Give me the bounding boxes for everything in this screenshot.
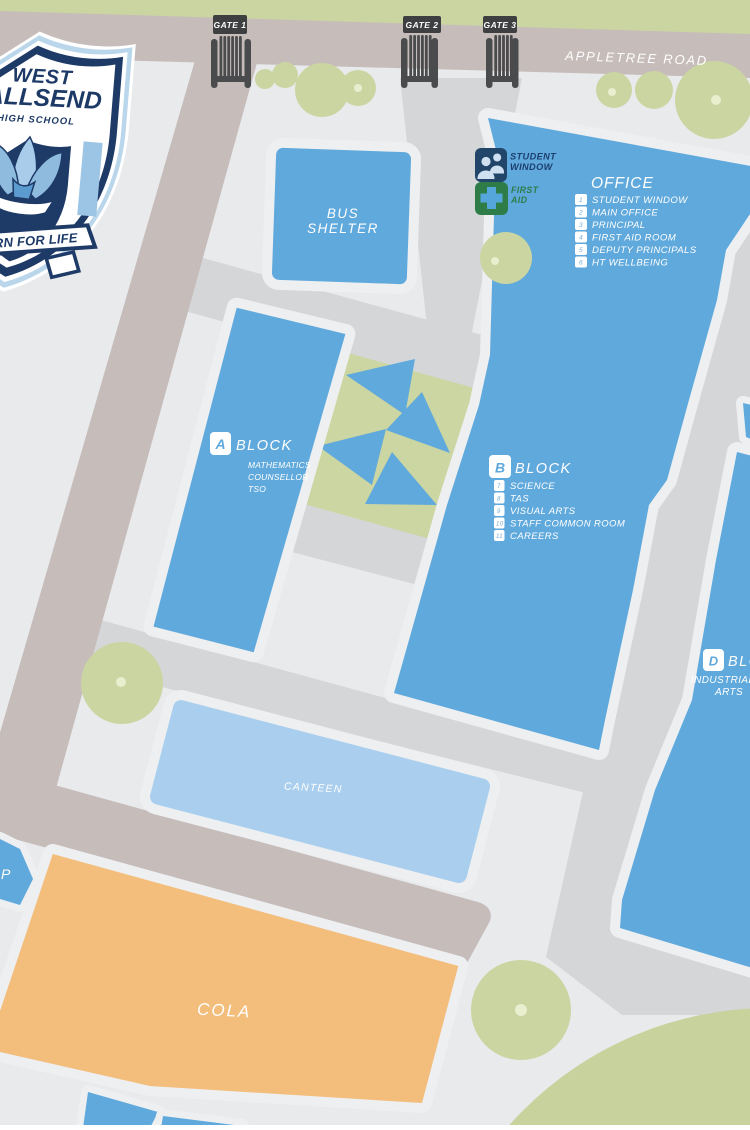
svg-text:COUNSELLOR: COUNSELLOR [248, 472, 309, 482]
svg-text:GATE 3: GATE 3 [483, 20, 516, 30]
svg-text:D: D [709, 654, 719, 669]
svg-text:B: B [495, 460, 505, 476]
svg-text:TSO: TSO [248, 484, 266, 494]
svg-text:CAREERS: CAREERS [510, 531, 559, 542]
svg-text:PRINCIPAL: PRINCIPAL [592, 220, 646, 231]
svg-text:VISUAL ARTS: VISUAL ARTS [510, 506, 576, 517]
svg-text:AID: AID [510, 195, 528, 205]
svg-text:10: 10 [496, 522, 504, 528]
svg-text:7: 7 [497, 484, 501, 490]
svg-text:11: 11 [496, 534, 503, 540]
svg-text:INDUSTRIAL: INDUSTRIAL [691, 675, 750, 686]
svg-text:BLOCK: BLOCK [515, 461, 572, 477]
svg-text:GATE 2: GATE 2 [405, 20, 438, 30]
svg-text:2: 2 [578, 210, 583, 217]
svg-text:SHELTER: SHELTER [307, 221, 379, 236]
svg-text:STUDENT: STUDENT [510, 152, 557, 162]
svg-text:4: 4 [579, 235, 583, 242]
svg-text:FIRST AID ROOM: FIRST AID ROOM [592, 233, 676, 244]
svg-text:TAS: TAS [510, 494, 529, 505]
svg-text:ARTS: ARTS [714, 687, 743, 698]
svg-text:5: 5 [579, 247, 583, 254]
svg-text:STAFF COMMON ROOM: STAFF COMMON ROOM [510, 519, 625, 530]
svg-text:HT WELLBEING: HT WELLBEING [592, 258, 668, 269]
svg-text:9: 9 [497, 509, 501, 515]
svg-text:BLOCK: BLOCK [728, 654, 750, 670]
svg-text:OFFICE: OFFICE [591, 175, 654, 192]
svg-text:A: A [214, 436, 225, 452]
svg-text:6: 6 [579, 260, 583, 267]
svg-text:MAIN OFFICE: MAIN OFFICE [592, 208, 658, 219]
svg-text:STUDENT WINDOW: STUDENT WINDOW [592, 195, 688, 206]
svg-text:3: 3 [579, 222, 583, 229]
svg-text:SCIENCE: SCIENCE [510, 481, 555, 492]
svg-text:P: P [1, 866, 11, 882]
svg-text:1: 1 [579, 197, 583, 204]
svg-text:GATE 1: GATE 1 [213, 20, 246, 30]
svg-text:MATHEMATICS: MATHEMATICS [248, 460, 311, 470]
svg-text:FIRST: FIRST [511, 185, 539, 195]
svg-text:WINDOW: WINDOW [510, 162, 554, 172]
svg-text:BLOCK: BLOCK [236, 438, 293, 454]
svg-text:DEPUTY PRINCIPALS: DEPUTY PRINCIPALS [592, 245, 697, 256]
svg-text:8: 8 [497, 497, 501, 503]
svg-text:COLA: COLA [197, 1000, 252, 1022]
svg-text:BUS: BUS [327, 206, 359, 221]
